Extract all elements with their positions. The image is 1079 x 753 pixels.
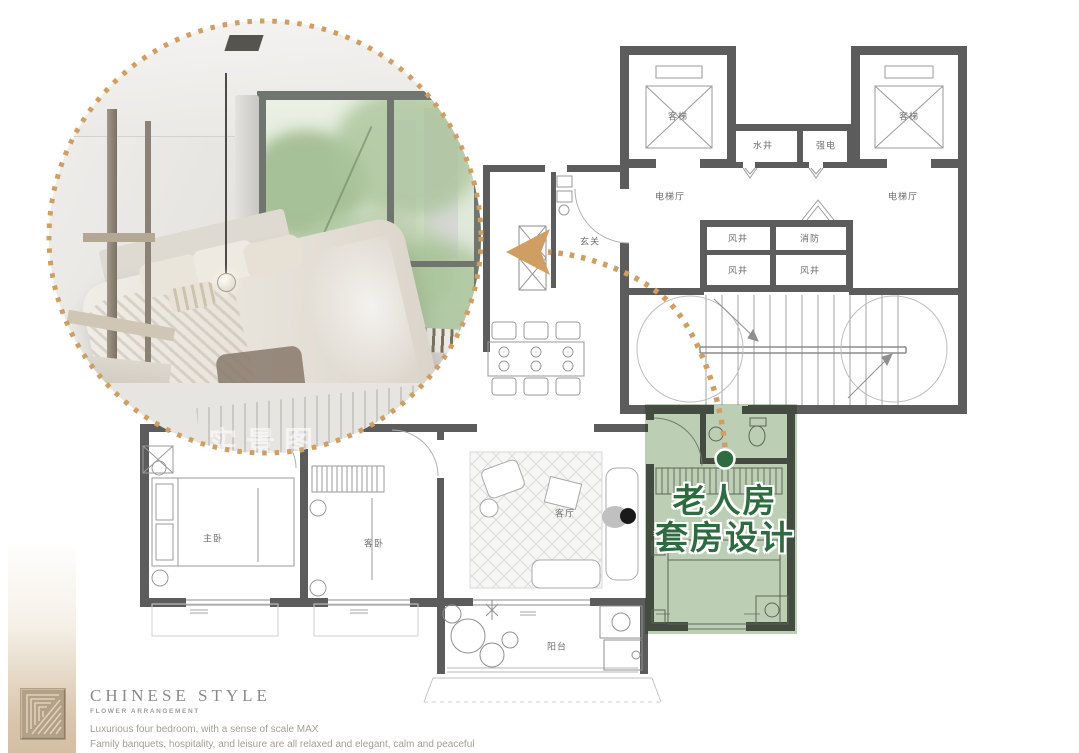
brand-title: CHINESE STYLE [90, 686, 475, 706]
brand-subtitle: FLOWER ARRANGEMENT [90, 708, 475, 715]
callout-overlay [0, 0, 1079, 753]
callout-dotted-arrow [548, 252, 725, 447]
suite-callout: 老人房 套房设计 [600, 484, 850, 558]
poster: 客梯 客梯 水井 强电 电梯厅 电梯厅 风井 消防 风井 风井 玄关 客厅 阳台… [0, 0, 1079, 753]
arrowhead-icon [506, 229, 550, 275]
brand-description-line2: Family banquets, hospitality, and leisur… [90, 737, 475, 752]
photo-dotted-border [49, 21, 481, 453]
suite-marker-dot [716, 450, 735, 469]
brand-text-block: CHINESE STYLE FLOWER ARRANGEMENT Luxurio… [90, 686, 475, 752]
concentric-squares-logo-icon [20, 688, 66, 740]
brand-description-line1: Luxurious four bedroom, with a sense of … [90, 722, 475, 737]
suite-callout-line1: 老人房 [600, 484, 850, 521]
suite-callout-line2: 套房设计 [600, 521, 850, 558]
